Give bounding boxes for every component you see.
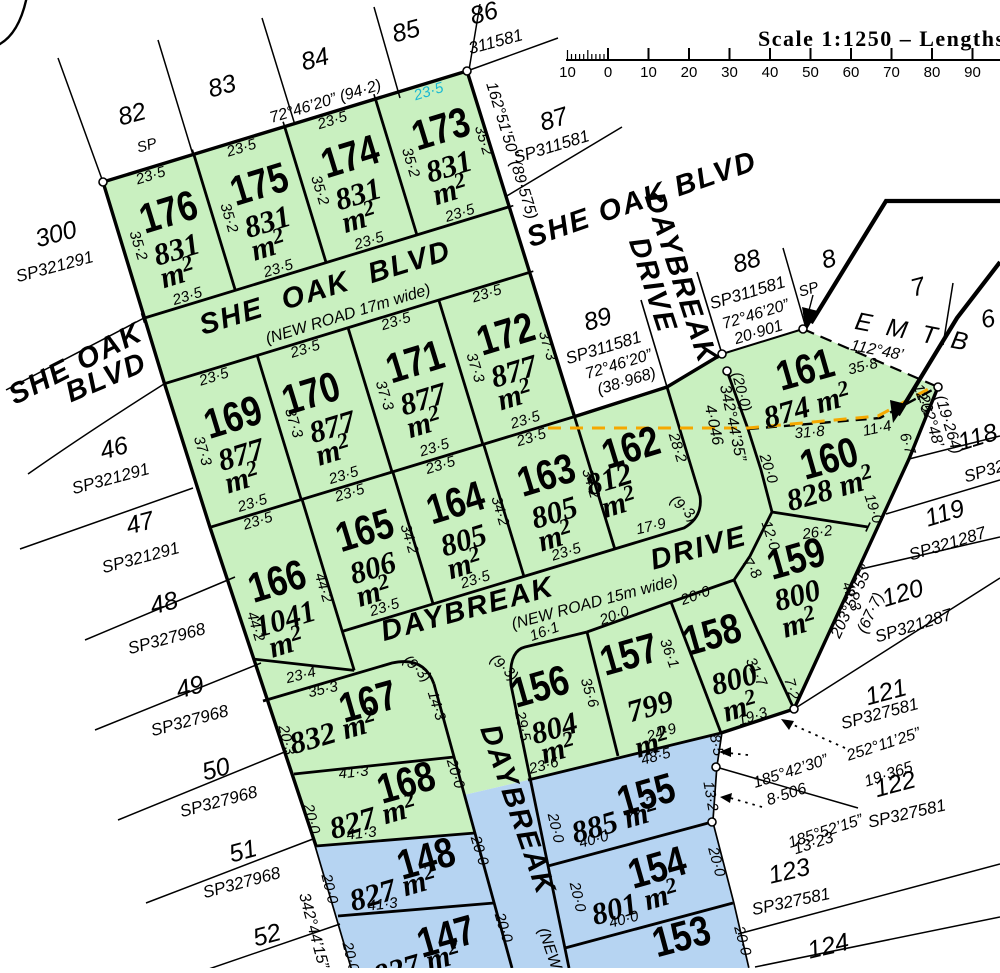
svg-text:300: 300 <box>32 215 80 253</box>
svg-text:SP327968: SP327968 <box>149 701 231 740</box>
svg-text:50: 50 <box>802 64 819 81</box>
svg-text:85: 85 <box>389 14 423 48</box>
svg-text:88: 88 <box>729 244 764 279</box>
svg-text:46: 46 <box>97 431 131 465</box>
svg-text:SP327581: SP327581 <box>750 884 832 919</box>
svg-text:80: 80 <box>924 64 941 81</box>
svg-text:SP321287: SP321287 <box>907 523 989 565</box>
svg-text:SP327968: SP327968 <box>178 782 260 821</box>
svg-text:48: 48 <box>147 586 181 620</box>
svg-text:SP321287: SP321287 <box>873 605 955 647</box>
svg-text:SP321291: SP321291 <box>14 247 96 286</box>
svg-text:90: 90 <box>964 64 981 81</box>
svg-text:40: 40 <box>762 64 779 81</box>
svg-text:SP327968: SP327968 <box>201 863 283 902</box>
svg-text:SP: SP <box>135 135 159 157</box>
svg-text:86: 86 <box>467 0 501 30</box>
svg-text:7: 7 <box>908 272 930 303</box>
svg-text:50: 50 <box>199 752 233 786</box>
svg-text:41·3: 41·3 <box>338 762 370 782</box>
svg-text:10: 10 <box>559 64 576 81</box>
svg-text:84: 84 <box>298 42 332 76</box>
svg-text:Scale 1:1250 – Lengths are: Scale 1:1250 – Lengths are <box>758 26 1000 51</box>
svg-text:SP: SP <box>797 279 821 301</box>
svg-text:31·8: 31·8 <box>794 423 826 443</box>
svg-text:49: 49 <box>173 670 207 704</box>
svg-text:52: 52 <box>250 918 284 952</box>
svg-text:SP321291: SP321291 <box>100 538 182 577</box>
svg-text:120: 120 <box>879 574 927 613</box>
svg-text:118: 118 <box>955 418 1000 456</box>
svg-text:252°11’25”: 252°11’25” <box>844 725 923 765</box>
svg-text:0: 0 <box>604 64 612 81</box>
svg-text:119: 119 <box>922 494 968 532</box>
svg-text:47: 47 <box>123 506 158 541</box>
svg-text:6: 6 <box>978 304 999 335</box>
svg-text:30: 30 <box>721 64 738 81</box>
svg-text:SP321291: SP321291 <box>70 459 152 498</box>
svg-text:51: 51 <box>226 834 260 868</box>
svg-text:82: 82 <box>115 97 149 131</box>
svg-text:70: 70 <box>883 64 900 81</box>
svg-text:89: 89 <box>580 302 615 337</box>
svg-text:124: 124 <box>805 928 852 965</box>
svg-text:123: 123 <box>766 853 813 890</box>
svg-text:SP327968: SP327968 <box>126 619 208 658</box>
svg-text:10: 10 <box>640 64 657 81</box>
svg-text:m2: m2 <box>0 0 19 11</box>
svg-text:41·3: 41·3 <box>367 894 399 914</box>
svg-text:60: 60 <box>843 64 860 81</box>
svg-text:8: 8 <box>818 244 840 275</box>
svg-text:83: 83 <box>205 69 239 103</box>
svg-text:20: 20 <box>681 64 698 81</box>
svg-text:41·3: 41·3 <box>346 823 378 843</box>
